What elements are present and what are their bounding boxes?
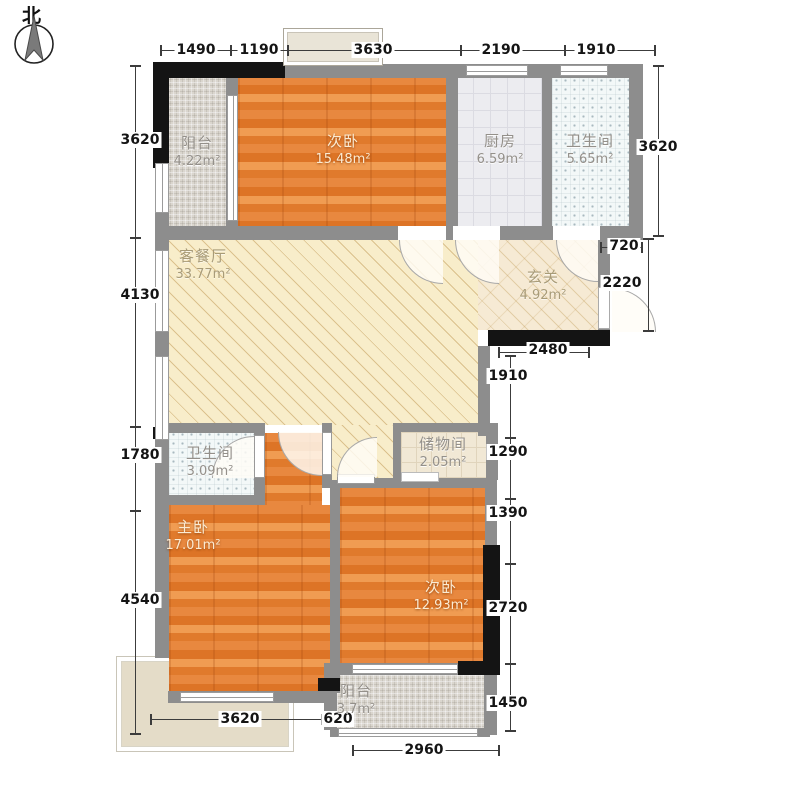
label-bath-mid: 卫生间3.09m² bbox=[186, 444, 234, 480]
dim-right-2720: 2720 bbox=[487, 600, 530, 616]
balcony-bottom-window bbox=[338, 728, 478, 737]
dim-right-720: 720 bbox=[607, 238, 640, 254]
room-bedroom-bottom bbox=[340, 488, 485, 663]
dim-right-2220: 2220 bbox=[601, 275, 644, 291]
label-balcony-top: 阳台4.22m² bbox=[174, 134, 221, 170]
master-door-leaf bbox=[322, 432, 332, 475]
wall-segment bbox=[393, 423, 490, 432]
balcony-glass-door bbox=[227, 95, 238, 221]
dim-right-1290: 1290 bbox=[487, 444, 530, 460]
dim-top-2190: 2190 bbox=[480, 42, 523, 58]
wall-segment bbox=[446, 76, 458, 228]
bedroom-top-door-opening bbox=[398, 226, 446, 240]
dim-line-left bbox=[135, 65, 136, 735]
dim-right-2480: 2480 bbox=[527, 342, 570, 358]
label-balcony-bottom: 阳台3.7m² bbox=[337, 682, 376, 718]
dim-left-4540: 4540 bbox=[119, 592, 162, 608]
wall-segment-black bbox=[153, 62, 285, 78]
dim-top-1190: 1190 bbox=[238, 42, 281, 58]
wall-segment-black bbox=[458, 661, 500, 675]
storage-door-opening bbox=[401, 472, 439, 482]
dim-line-2220 bbox=[648, 238, 649, 332]
balcony-top-window bbox=[155, 163, 169, 213]
wall-segment bbox=[330, 480, 340, 693]
label-living-dining: 客餐厅33.77m² bbox=[175, 247, 230, 283]
entrance-door-opening bbox=[598, 287, 610, 329]
wall-segment-black bbox=[153, 62, 169, 168]
dim-right-1390: 1390 bbox=[487, 505, 530, 521]
dim-top-1910: 1910 bbox=[575, 42, 618, 58]
label-kitchen: 厨房6.59m² bbox=[477, 132, 524, 168]
label-bedroom-bottom: 次卧12.93m² bbox=[413, 578, 468, 614]
dim-top-3630: 3630 bbox=[352, 42, 395, 58]
master-window bbox=[180, 692, 274, 702]
dim-top-1490: 1490 bbox=[175, 42, 218, 58]
dim-right-1910: 1910 bbox=[487, 368, 530, 384]
label-master-bedroom: 主卧17.01m² bbox=[165, 518, 220, 554]
bath-top-window bbox=[560, 65, 608, 76]
dim-right-3620: 3620 bbox=[637, 139, 680, 155]
entrance-door-swing bbox=[612, 288, 656, 332]
wall-segment bbox=[542, 76, 552, 228]
dim-bottom-3620: 3620 bbox=[219, 711, 262, 727]
dim-bottom-2960: 2960 bbox=[403, 742, 446, 758]
label-storage: 储物间2.05m² bbox=[419, 435, 467, 471]
dim-left-4130: 4130 bbox=[119, 287, 162, 303]
living-window-lower bbox=[155, 356, 169, 440]
bedroom-bottom-window bbox=[352, 664, 458, 674]
label-hallway: 玄关4.92m² bbox=[520, 268, 567, 304]
floor-plan: 北 bbox=[0, 0, 800, 800]
wall-segment bbox=[155, 423, 265, 433]
dim-left-1780: 1780 bbox=[119, 447, 162, 463]
dim-left-3620: 3620 bbox=[119, 132, 162, 148]
dim-right-1450: 1450 bbox=[487, 695, 530, 711]
dim-line-right-inner bbox=[510, 355, 511, 732]
compass-icon bbox=[10, 14, 62, 70]
label-bedroom-top: 次卧15.48m² bbox=[315, 132, 370, 168]
kitchen-door-opening bbox=[453, 226, 500, 240]
wall-segment bbox=[393, 430, 401, 480]
bath-mid-door-leaf bbox=[254, 435, 265, 478]
label-bath-top: 卫生间5.65m² bbox=[566, 132, 614, 168]
bath-top-door-opening bbox=[553, 226, 600, 240]
wall-segment bbox=[168, 495, 265, 505]
kitchen-window bbox=[466, 65, 528, 76]
